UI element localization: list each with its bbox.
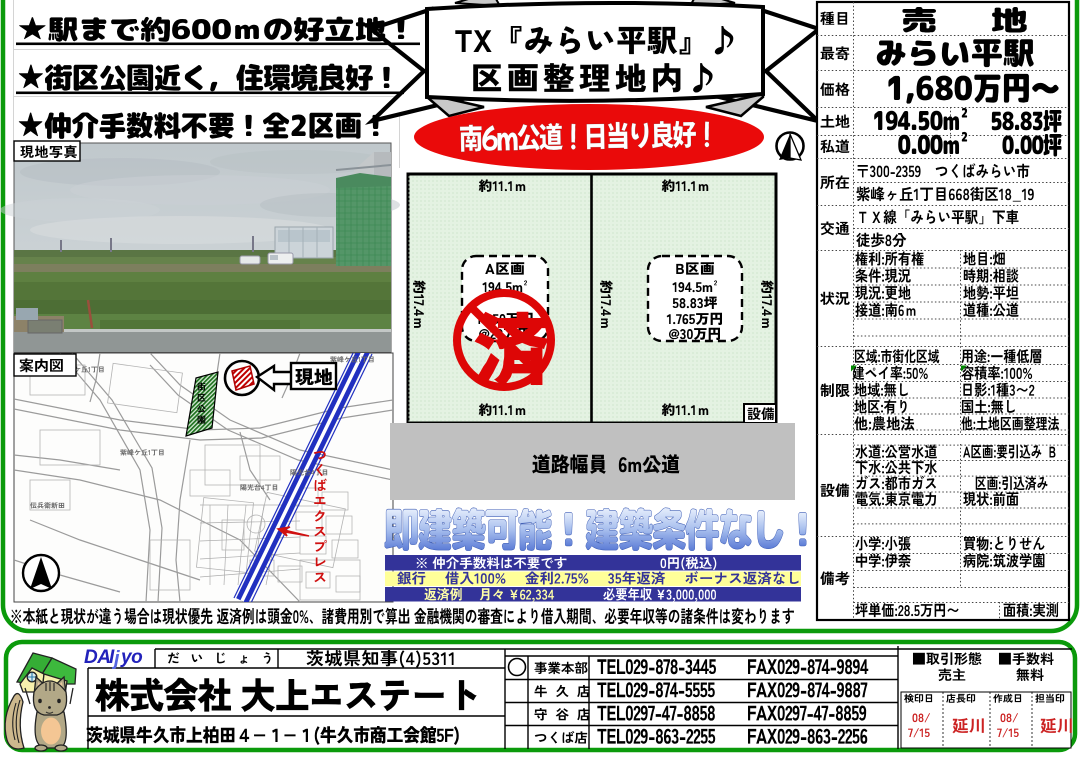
- svg-text:DA: DA: [84, 647, 110, 668]
- svg-text:yo: yo: [120, 647, 142, 668]
